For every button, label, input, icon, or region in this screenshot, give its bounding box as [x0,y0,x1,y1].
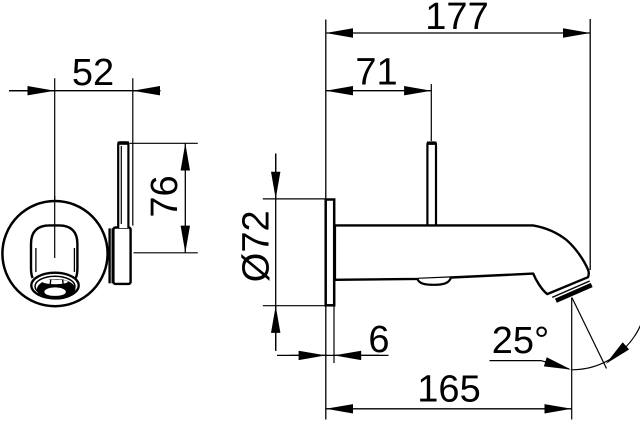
svg-text:71: 71 [355,52,397,94]
svg-text:177: 177 [425,0,488,38]
svg-text:Ø72: Ø72 [236,210,278,282]
svg-text:6: 6 [368,319,389,361]
svg-text:25°: 25° [492,320,549,362]
svg-text:165: 165 [417,368,480,410]
svg-text:76: 76 [144,175,186,217]
svg-text:52: 52 [72,52,114,94]
